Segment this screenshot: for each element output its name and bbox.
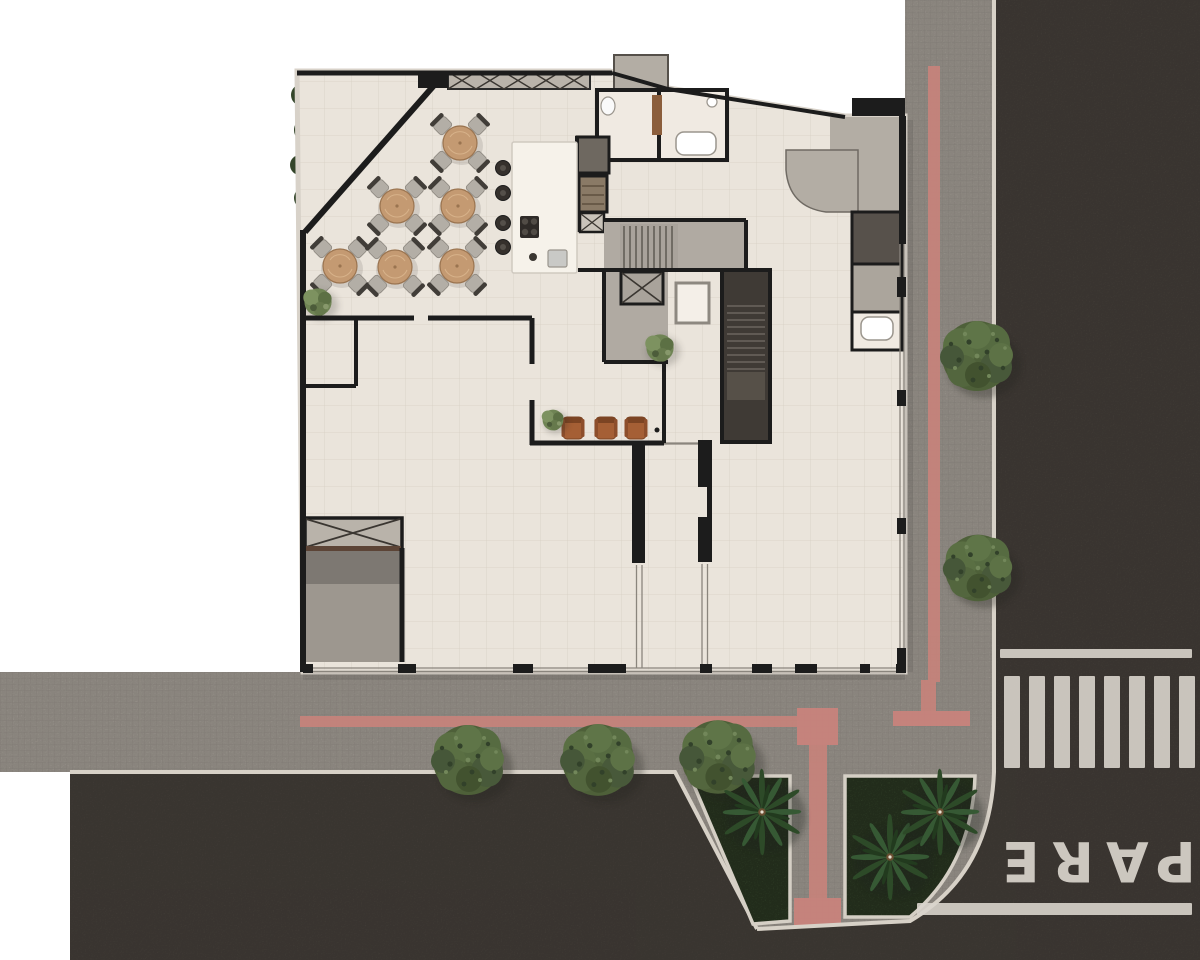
stool	[496, 240, 511, 255]
garage-shadow	[306, 550, 402, 584]
lounge-chairs-layer	[562, 417, 648, 439]
plan-canvas: PARE	[0, 0, 1200, 960]
oven-icon	[579, 176, 607, 212]
wood-door	[652, 95, 662, 135]
armchair	[595, 417, 618, 439]
stool	[496, 216, 511, 231]
stair-flight	[620, 224, 678, 270]
stop-marking-text: PARE	[990, 829, 1196, 893]
sink-steel-icon	[548, 250, 567, 267]
toilet-icon	[601, 97, 615, 115]
tactile-pad-bottom	[794, 898, 841, 926]
stool	[496, 161, 511, 176]
stairwell-dark	[722, 270, 770, 442]
building-shadow-south	[303, 672, 905, 680]
elevator-cab	[676, 283, 709, 323]
fridge-icon	[577, 137, 609, 173]
faucet-icon	[529, 253, 537, 261]
zebra-stripe	[1004, 676, 1020, 768]
tub-icon	[676, 132, 716, 155]
door-handle	[655, 428, 660, 433]
tactile-bar-right	[893, 711, 970, 726]
site-plan-render: PARE	[0, 0, 1200, 960]
zebra-stripe	[1104, 676, 1120, 768]
utility-room	[852, 264, 902, 312]
zebra-stripe	[1029, 676, 1045, 768]
garage-door-strip	[306, 546, 401, 551]
tactile-pad-top	[797, 708, 838, 745]
stool	[496, 186, 511, 201]
zebra-stripe	[1129, 676, 1145, 768]
rooftop-unit	[614, 55, 668, 89]
building	[297, 55, 913, 680]
dark-utility-room	[852, 212, 902, 264]
building-shadow-east	[905, 120, 913, 672]
zebra-stripe	[1054, 676, 1070, 768]
bathtub-icon	[861, 317, 893, 340]
tactile-stub	[921, 680, 936, 713]
stop-line	[1000, 649, 1192, 658]
zebra-stripe	[1079, 676, 1095, 768]
kitchen-island	[512, 142, 577, 273]
stairwell-landing	[727, 372, 765, 400]
armchair	[625, 417, 648, 439]
zebra-stripe	[1179, 676, 1195, 768]
wall-niche	[698, 487, 707, 517]
zebra-stripe	[1154, 676, 1170, 768]
tactile-strip-right	[928, 66, 940, 682]
stop-line	[917, 903, 1192, 915]
tactile-stem	[809, 745, 827, 898]
